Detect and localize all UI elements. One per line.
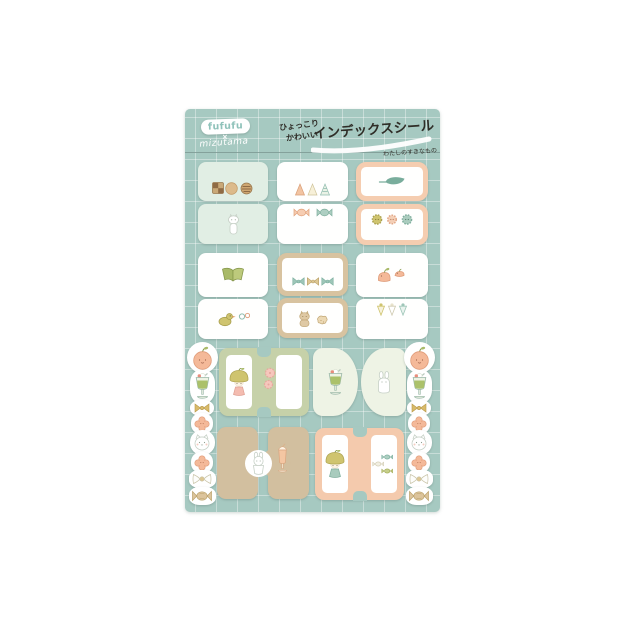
tab-girl-tab-sage <box>219 348 309 416</box>
deco-sticker-bow-white-right <box>406 470 433 488</box>
rabbit-cup-icon <box>250 451 267 476</box>
flower-icon <box>411 455 427 471</box>
book-icon <box>221 267 245 283</box>
tab-half-bird-tab-white <box>356 299 428 339</box>
cones-icon <box>376 303 408 316</box>
party-hats-icon <box>295 183 331 196</box>
deco-sticker-bow-white-left <box>189 470 216 488</box>
tab-half-snack-tab-mint <box>198 162 268 201</box>
leaf-icon <box>378 176 406 187</box>
girl-teal-icon <box>324 450 346 478</box>
deco-sticker-candy-tan-right <box>406 487 433 505</box>
top-notch <box>257 347 271 357</box>
cat-face-icon <box>410 433 428 452</box>
girl-pink-icon <box>228 368 250 396</box>
deco-sticker-apple-left <box>187 342 218 373</box>
tab-half-leaf-tab-peach <box>356 162 428 201</box>
cookies-icon <box>212 181 254 196</box>
tab-half-book-tab-white <box>198 253 268 297</box>
flower-icon <box>194 455 210 471</box>
candies-icon <box>293 208 333 217</box>
cat-face-icon <box>193 433 211 452</box>
tab-half-bird-tab-white <box>356 253 428 297</box>
candy-tan-icon <box>408 490 430 502</box>
deco-sticker-cream-soda-right <box>407 370 432 403</box>
tab-half-hat-tab-white <box>277 204 348 244</box>
blossoms-icon <box>262 367 277 391</box>
milkshake-icon <box>276 443 289 474</box>
bow-white-icon <box>409 473 429 485</box>
bow-gold-icon <box>411 403 427 413</box>
tab-half-bow-tab-tan <box>277 298 348 338</box>
brand-mizutama: mizutama <box>190 136 259 151</box>
bow-white-icon <box>192 473 212 485</box>
tab-half-leaf-tab-peach <box>356 204 428 245</box>
buttons-icon <box>370 213 414 226</box>
top-notch <box>353 427 367 437</box>
tab-bump-left <box>245 450 272 477</box>
rabbit-icon <box>376 371 392 394</box>
apple-icon <box>408 346 431 370</box>
cat-standing-icon <box>227 213 240 235</box>
tab-half-bow-tab-tan <box>277 253 348 296</box>
deco-sticker-cream-soda-left <box>190 370 215 403</box>
duck-flowers-icon <box>216 312 250 327</box>
bows-icon <box>292 277 334 286</box>
tab-half-book-tab-white <box>198 299 268 339</box>
tab-window-left <box>322 435 348 493</box>
tab-window-left <box>226 355 252 409</box>
cat-cookie-icon <box>296 310 330 327</box>
deco-sticker-apple-right <box>404 342 435 373</box>
cream-soda-icon <box>327 369 344 396</box>
fish-candies-icon <box>371 453 397 475</box>
tab-soda-tab-halfround-left <box>313 348 358 416</box>
cream-soda-icon <box>194 373 211 400</box>
tab-soda-tab-halfround-right <box>361 348 406 416</box>
deco-sticker-candy-tan-left <box>189 487 216 505</box>
tab-half-snack-tab-mint <box>198 204 268 244</box>
tab-window-right <box>276 355 302 409</box>
apple-icon <box>191 346 214 370</box>
bottom-notch <box>257 407 271 417</box>
candy-tan-icon <box>191 490 213 502</box>
tab-window-right <box>371 435 397 493</box>
cream-soda-icon <box>411 373 428 400</box>
birds-icon <box>375 267 409 283</box>
sticker-sheet: fufufu × mizutama ひょっこり かわいい インデックスシール わ… <box>185 109 440 512</box>
fufufu-logo-text: fufufu <box>208 120 243 132</box>
tab-half-hat-tab-white <box>277 162 348 201</box>
bottom-notch <box>353 491 367 501</box>
tab-girl-tab-peach <box>315 428 404 500</box>
product-image: fufufu × mizutama ひょっこり かわいい インデックスシール わ… <box>0 0 623 620</box>
bow-gold-icon <box>194 403 210 413</box>
